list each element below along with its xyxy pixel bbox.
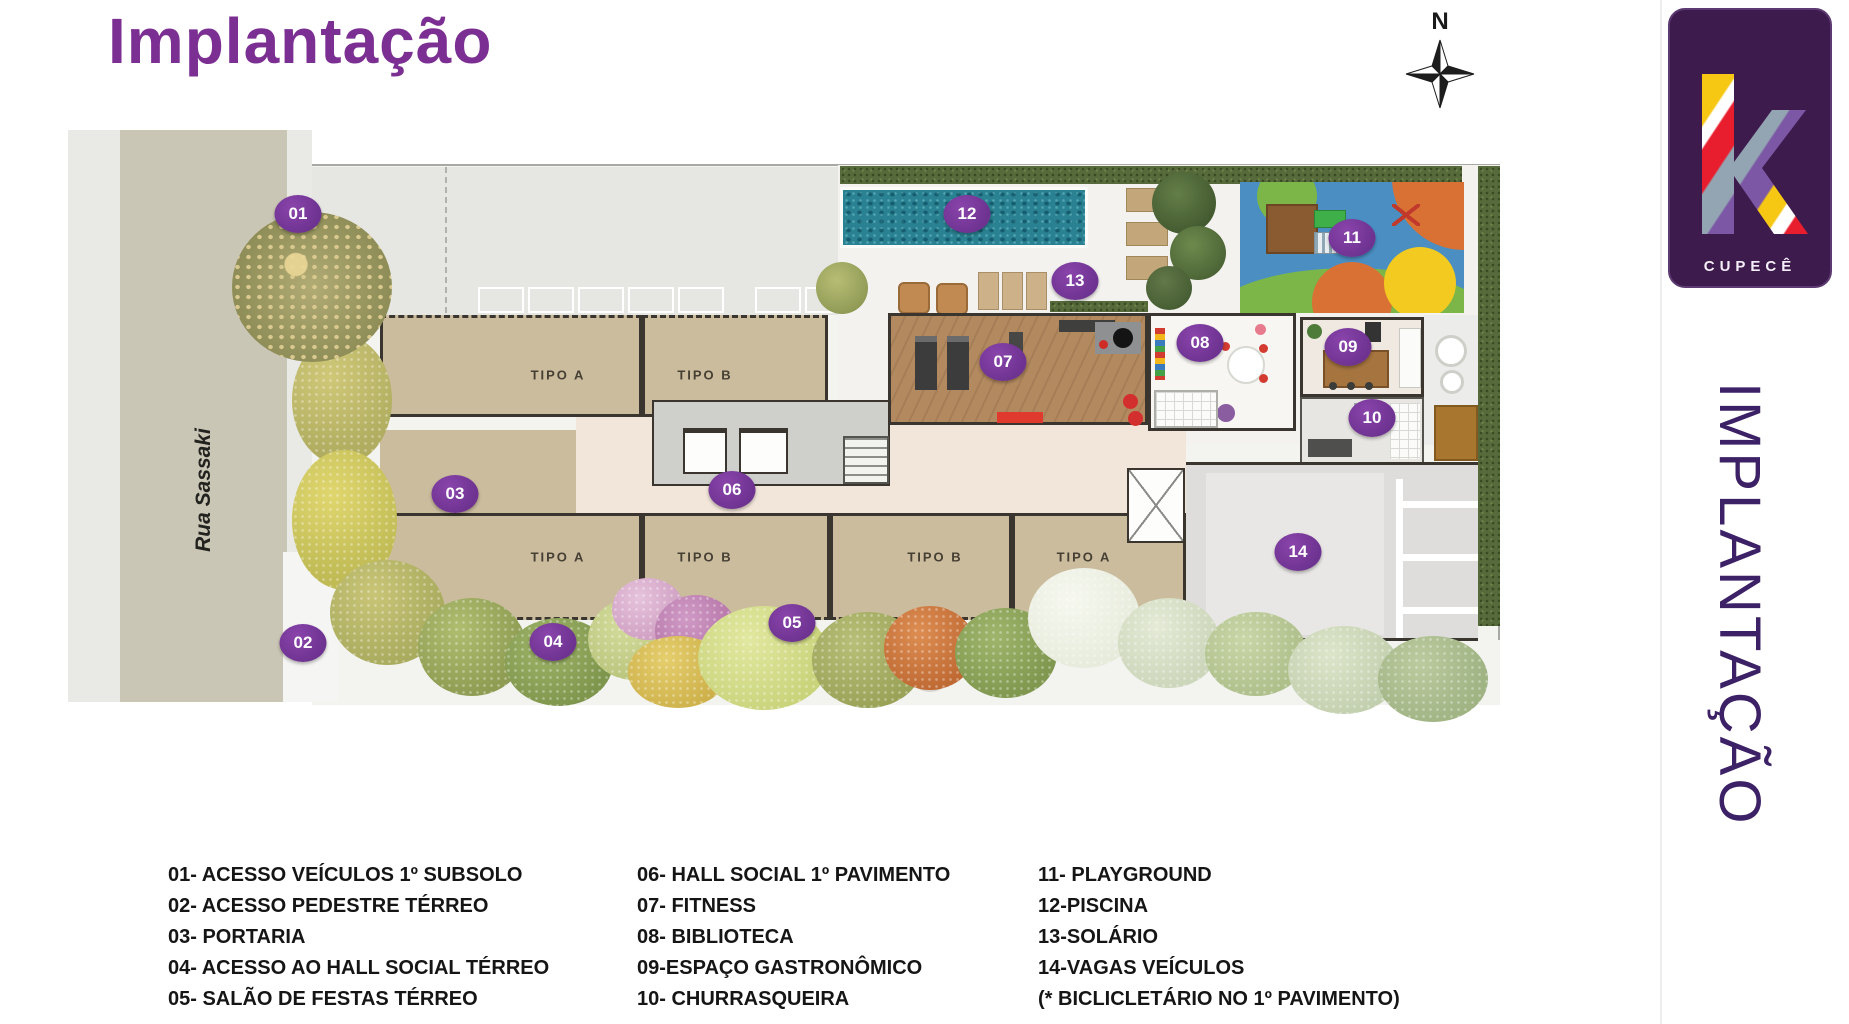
seesaw-icon xyxy=(1392,204,1420,226)
legend-item: 06- HALL SOCIAL 1º PAVIMENTO xyxy=(637,860,950,891)
marker-08: 08 xyxy=(1177,324,1224,362)
unit-label: TIPO B xyxy=(677,550,732,565)
vertical-divider xyxy=(1660,0,1662,1024)
marker-05: 05 xyxy=(769,604,816,642)
marker-11: 11 xyxy=(1329,219,1376,257)
legend-item: 02- ACESSO PEDESTRE TÉRREO xyxy=(168,891,549,922)
unit-label: TIPO A xyxy=(531,550,586,565)
round-planter xyxy=(1440,370,1464,394)
treadmill xyxy=(947,336,969,390)
marker-01: 01 xyxy=(275,195,322,233)
plant xyxy=(1307,324,1322,339)
chair-dot xyxy=(1259,344,1268,353)
legend-item: 03- PORTARIA xyxy=(168,922,549,953)
unit-label: TIPO A xyxy=(1057,550,1112,565)
marker-14: 14 xyxy=(1275,533,1322,571)
legend-column-1: 01- ACESSO VEÍCULOS 1º SUBSOLO02- ACESSO… xyxy=(168,860,549,1015)
property-dashed-line xyxy=(445,167,447,313)
shaft xyxy=(1127,468,1185,543)
grill-circle xyxy=(1113,328,1133,348)
marker-07: 07 xyxy=(980,343,1027,381)
legend-item: 14-VAGAS VEÍCULOS xyxy=(1038,953,1400,984)
chair-dot xyxy=(1259,374,1268,383)
parking-stall xyxy=(578,287,624,313)
stall-line xyxy=(1400,607,1478,614)
page: Implantação N CUPECÊ IMPLAN xyxy=(0,0,1849,1024)
legend-item: 05- SALÃO DE FESTAS TÉRREO xyxy=(168,984,549,1015)
legend-item: 08- BIBLIOTECA xyxy=(637,922,950,953)
side-vertical-title: IMPLANTAÇÃO xyxy=(1706,382,1773,1012)
parking-area xyxy=(1186,462,1478,640)
library-room xyxy=(1148,313,1296,431)
red-mat xyxy=(997,412,1043,423)
marker-10: 10 xyxy=(1349,399,1396,437)
sun-lounger xyxy=(978,272,999,310)
chair-dot xyxy=(1329,382,1337,390)
stall-line xyxy=(1400,554,1478,561)
street-sidewalk xyxy=(68,130,120,702)
tree xyxy=(232,212,392,362)
tiled-floor xyxy=(1390,403,1420,459)
legend-item: 09-ESPAÇO GASTRONÔMICO xyxy=(637,953,950,984)
parking-stall xyxy=(678,287,724,313)
red-dot xyxy=(1099,340,1108,349)
legend-item: 10- CHURRASQUEIRA xyxy=(637,984,950,1015)
deck-table xyxy=(898,282,930,314)
hedge-strip xyxy=(1050,301,1148,312)
outdoor-table xyxy=(1434,405,1478,461)
pink-dot xyxy=(1255,324,1266,335)
marker-03: 03 xyxy=(432,475,479,513)
elevator xyxy=(739,428,788,474)
marker-04: 04 xyxy=(530,623,577,661)
play-structure xyxy=(1266,204,1318,254)
playground-yellow-circle xyxy=(1384,247,1456,313)
stall-line xyxy=(1400,501,1478,508)
legend-item: 04- ACESSO AO HALL SOCIAL TÉRREO xyxy=(168,953,549,984)
sun-lounger xyxy=(1002,272,1023,310)
hedge-right xyxy=(1478,166,1500,626)
legend-item: 12-PISCINA xyxy=(1038,891,1400,922)
elevator xyxy=(683,428,727,474)
marker-09: 09 xyxy=(1325,328,1372,366)
marker-06: 06 xyxy=(709,471,756,509)
marker-02: 02 xyxy=(280,624,327,662)
unit-tipo-a xyxy=(380,315,642,417)
parking-stall xyxy=(628,287,674,313)
stairs xyxy=(843,436,889,484)
planter-tree xyxy=(816,262,868,314)
parking-stall xyxy=(478,287,524,313)
marker-13: 13 xyxy=(1052,262,1099,300)
unit-label: TIPO B xyxy=(907,550,962,565)
chair-dot xyxy=(1365,382,1373,390)
legend-column-2: 06- HALL SOCIAL 1º PAVIMENTO07- FITNESS0… xyxy=(637,860,950,1015)
bean-bag xyxy=(1217,404,1235,422)
red-ball xyxy=(1128,411,1143,426)
round-planter xyxy=(1435,335,1467,367)
tree xyxy=(1146,266,1192,310)
parking-stall xyxy=(755,287,801,313)
tree xyxy=(1152,172,1216,234)
chair-dot xyxy=(1347,382,1355,390)
marker-12: 12 xyxy=(944,195,991,233)
garden-bush xyxy=(1118,598,1220,688)
legend-column-3: 11- PLAYGROUND12-PISCINA13-SOLÁRIO14-VAG… xyxy=(1038,860,1400,1015)
treadmill xyxy=(915,336,937,390)
unit-label: TIPO B xyxy=(677,368,732,383)
legend-item: 07- FITNESS xyxy=(637,891,950,922)
unit-tipo-b xyxy=(830,513,1012,620)
sun-lounger xyxy=(1026,272,1047,310)
legend-item: 11- PLAYGROUND xyxy=(1038,860,1400,891)
unit-label: TIPO A xyxy=(531,368,586,383)
garden-bush xyxy=(1378,636,1488,722)
legend-item: 01- ACESSO VEÍCULOS 1º SUBSOLO xyxy=(168,860,549,891)
bookshelf xyxy=(1155,328,1165,380)
grill-counter xyxy=(1308,439,1352,457)
brand-logo xyxy=(1668,8,1832,288)
parking-stall xyxy=(528,287,574,313)
street-name: Rua Sassaki xyxy=(120,300,287,680)
legend-item: (* BICLICLETÁRIO NO 1º PAVIMENTO) xyxy=(1038,984,1400,1015)
legend-item: 13-SOLÁRIO xyxy=(1038,922,1400,953)
counter xyxy=(1399,328,1421,388)
unit-extension xyxy=(380,430,580,515)
bathroom xyxy=(1154,390,1218,428)
red-ball xyxy=(1123,394,1138,409)
brand-name: CUPECÊ xyxy=(1668,258,1832,275)
deck-table xyxy=(936,283,968,315)
